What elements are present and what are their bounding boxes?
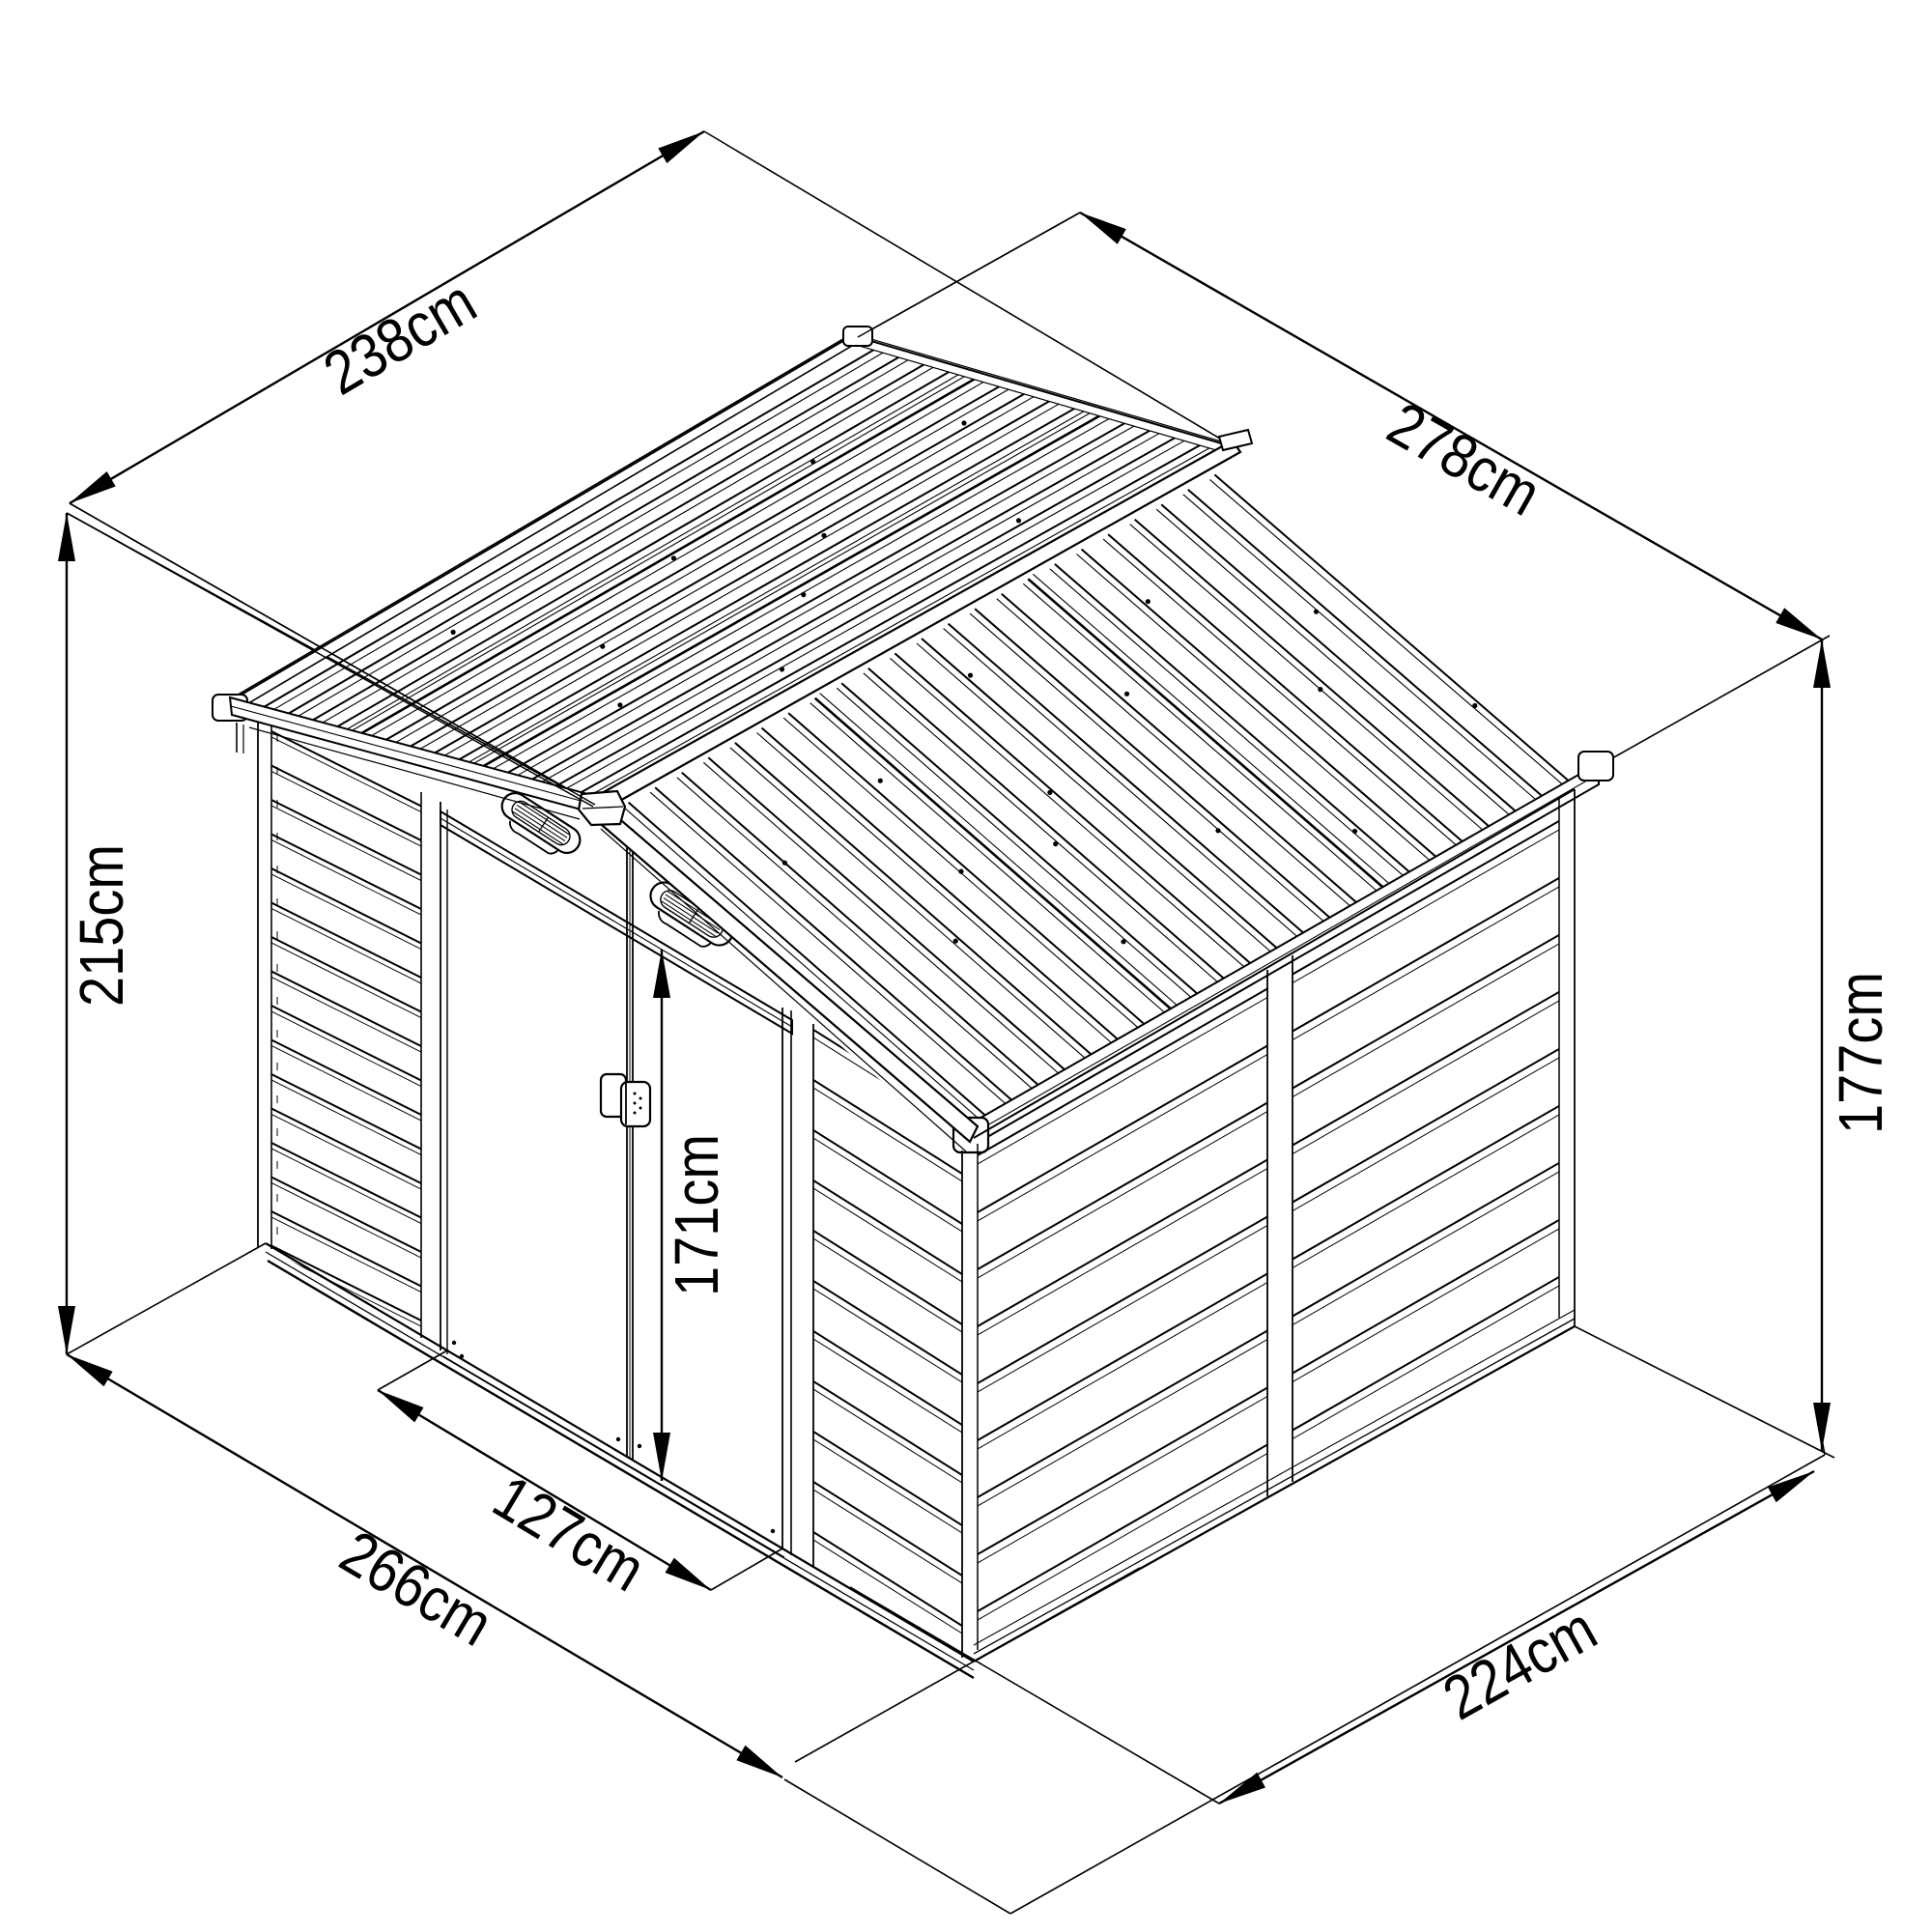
svg-text:177cm: 177cm	[1826, 972, 1895, 1134]
svg-text:171cm: 171cm	[662, 1134, 731, 1296]
svg-text:215cm: 215cm	[67, 844, 136, 1007]
